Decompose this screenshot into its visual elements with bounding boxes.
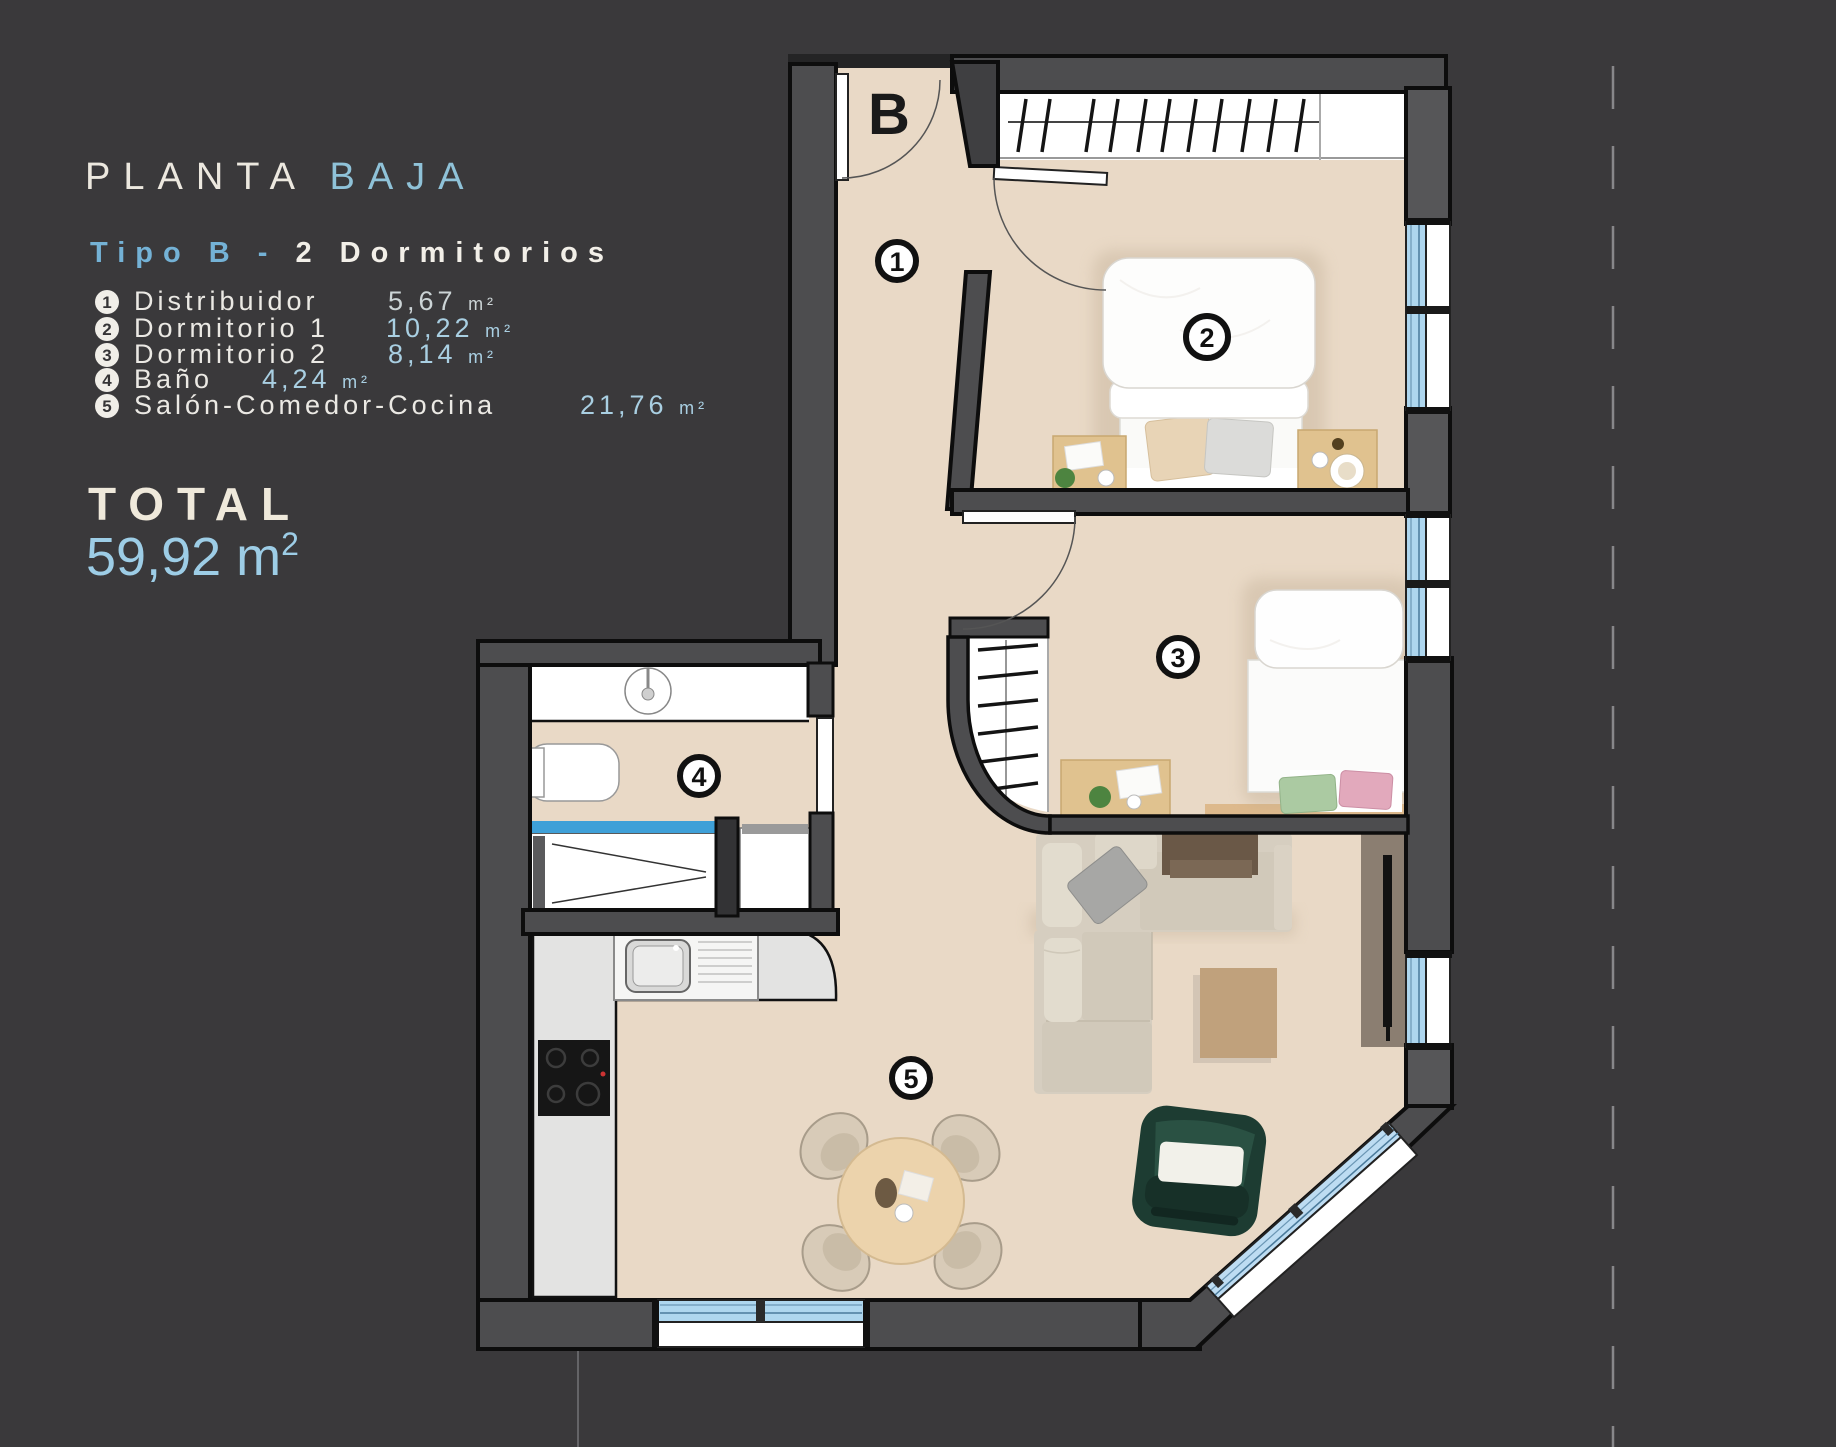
svg-text:59,92 m2: 59,92 m2 bbox=[86, 526, 299, 587]
svg-text:1: 1 bbox=[889, 247, 904, 277]
svg-text:TOTAL: TOTAL bbox=[88, 478, 302, 530]
svg-text:4: 4 bbox=[102, 371, 112, 390]
svg-text:5: 5 bbox=[102, 397, 111, 416]
svg-text:Distribuidor: Distribuidor bbox=[134, 286, 319, 316]
svg-text:PLANTA BAJA: PLANTA BAJA bbox=[85, 156, 477, 198]
svg-text:Salón-Comedor-Cocina: Salón-Comedor-Cocina bbox=[134, 390, 496, 420]
svg-text:4: 4 bbox=[691, 762, 706, 792]
svg-text:Tipo B - 2 Dormitorios: Tipo B - 2 Dormitorios bbox=[90, 237, 614, 269]
svg-text:3: 3 bbox=[102, 346, 111, 365]
svg-text:2: 2 bbox=[102, 320, 111, 339]
svg-text:1: 1 bbox=[102, 293, 111, 312]
svg-text:B: B bbox=[868, 82, 910, 147]
svg-text:5: 5 bbox=[903, 1064, 918, 1094]
svg-text:3: 3 bbox=[1170, 643, 1185, 673]
svg-text:2: 2 bbox=[1199, 323, 1214, 353]
